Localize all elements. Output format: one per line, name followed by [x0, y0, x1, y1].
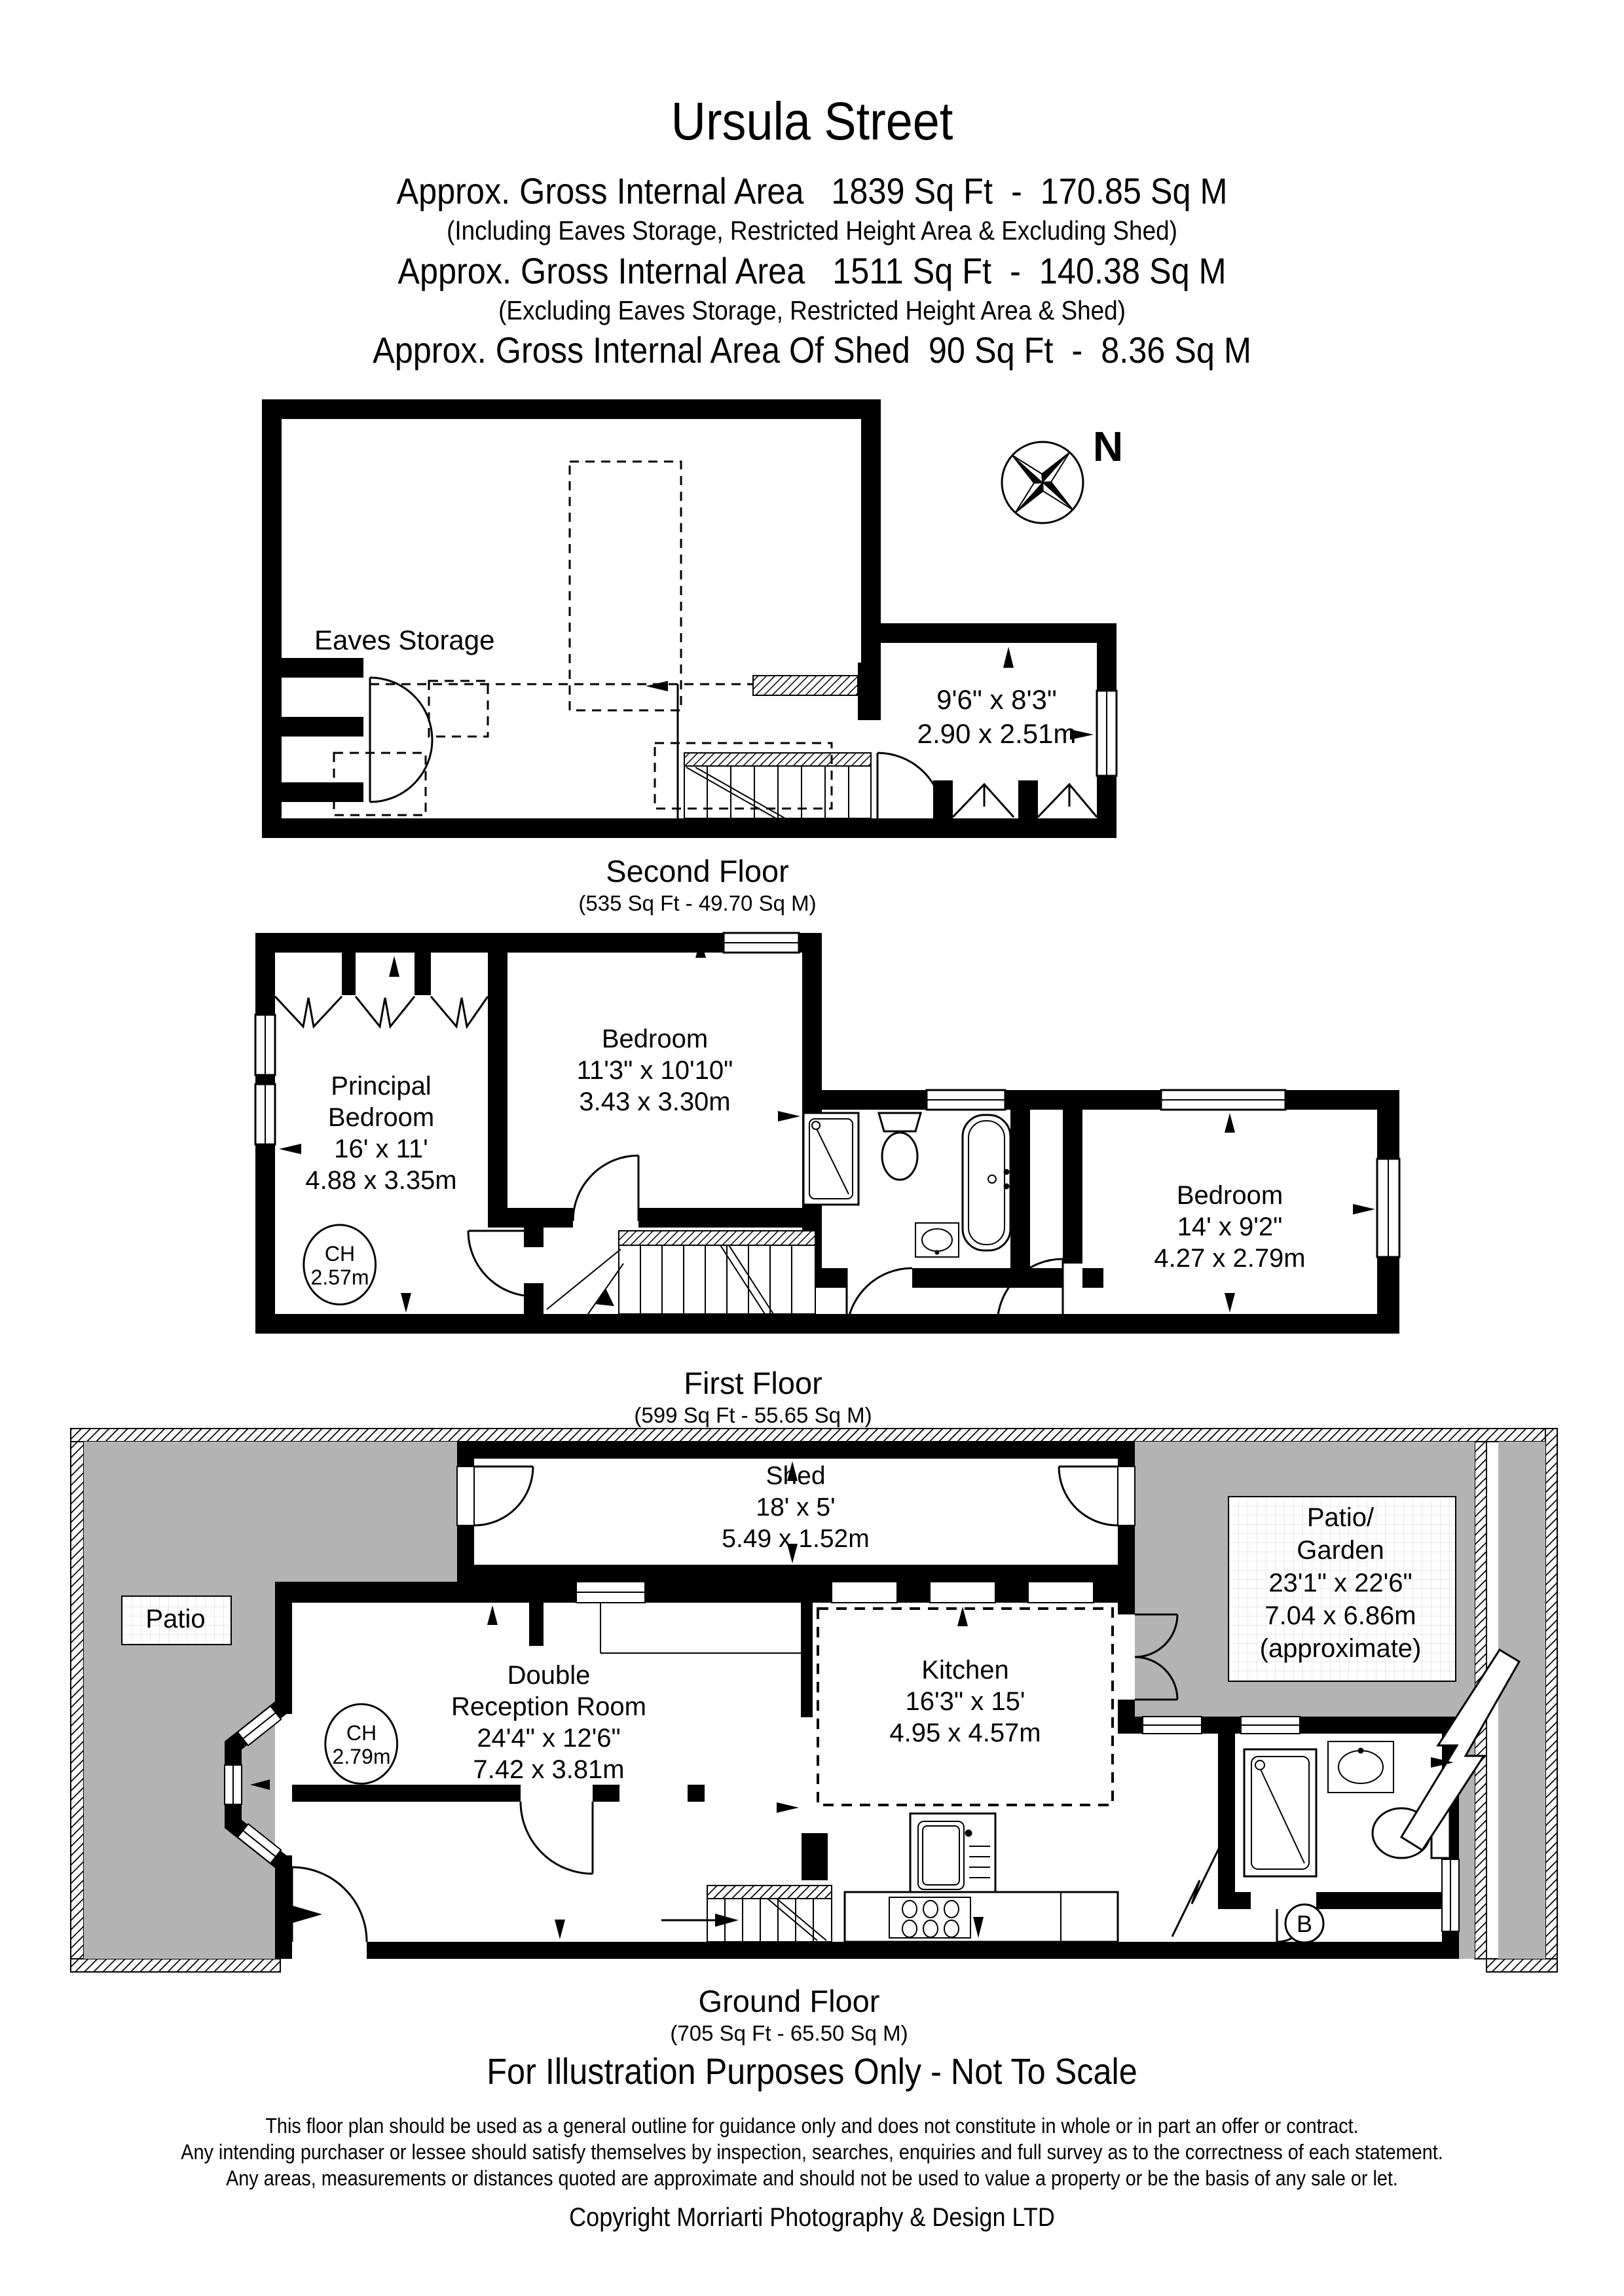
floor-name-second: Second Floor — [606, 855, 789, 888]
sink-icon — [910, 1813, 995, 1897]
room-label-principal-bedroom-line2: Bedroom — [328, 1104, 434, 1132]
room-label-kitchen: Kitchen — [921, 1656, 1008, 1685]
wardrobe-bifold-icon — [275, 996, 488, 1027]
room-dim-metric: 4.88 x 3.35m — [305, 1167, 456, 1195]
room-dim-imperial: 24'4" x 12'6" — [477, 1724, 620, 1753]
floor-area-ground: (705 Sq Ft - 65.50 Sq M) — [670, 2022, 908, 2045]
room-dim-metric: 4.95 x 4.57m — [889, 1719, 1041, 1747]
room-label-reception-line2: Reception Room — [451, 1693, 646, 1721]
doorway-zigzag-icon — [1172, 1848, 1219, 1937]
scale-disclaimer: For Illustration Purposes Only - Not To … — [487, 2052, 1137, 2091]
gross-area-line-3: Approx. Gross Internal Area Of Shed 90 S… — [373, 331, 1251, 370]
boiler-label: B — [1297, 1912, 1312, 1937]
room-label-shed: Shed — [766, 1463, 825, 1490]
disclaimer-line-1: This floor plan should be used as a gene… — [265, 2115, 1358, 2138]
area-label-patio: Patio — [145, 1605, 205, 1633]
door-arc-icon — [370, 678, 432, 802]
room-dim-metric: 4.27 x 2.79m — [1154, 1245, 1305, 1273]
ceiling-height-label: CH — [325, 1243, 355, 1266]
page-title: Ursula Street — [671, 93, 953, 151]
ceiling-height-label: CH — [346, 1722, 377, 1745]
bath-icon — [963, 1115, 1010, 1250]
room-dim-metric: 2.90 x 2.51m — [917, 719, 1077, 748]
room-dim-metric: 3.43 x 3.30m — [579, 1088, 730, 1116]
stairs-icon — [655, 743, 871, 818]
room-dim-imperial: 16'3" x 15' — [906, 1688, 1025, 1716]
shower-icon — [1244, 1749, 1316, 1876]
disclaimer-line-3: Any areas, measurements or distances quo… — [226, 2167, 1398, 2190]
room-dim-imperial: 18' x 5' — [756, 1494, 835, 1522]
area-label-garden-line1: Patio/ — [1307, 1504, 1374, 1532]
basin-icon — [915, 1223, 959, 1257]
restricted-height-wall — [753, 676, 858, 695]
shower-icon — [803, 1113, 858, 1205]
stairs-icon — [661, 1886, 832, 1942]
area-label-garden-note: (approximate) — [1260, 1635, 1422, 1663]
copyright-notice: Copyright Morriarti Photography & Design… — [569, 2204, 1055, 2232]
toilet-icon — [879, 1113, 921, 1180]
floor-plan-page: Ursula Street Approx. Gross Internal Are… — [0, 0, 1624, 2296]
entrance-arrow-icon — [275, 1901, 322, 1928]
room-label-eaves-storage: Eaves Storage — [314, 625, 495, 655]
gross-area-line-2: Approx. Gross Internal Area 1511 Sq Ft -… — [397, 251, 1226, 291]
area-dim-metric: 7.04 x 6.86m — [1264, 1602, 1416, 1630]
room-label-bedroom-mid: Bedroom — [602, 1025, 708, 1053]
area-label-garden-line2: Garden — [1297, 1537, 1384, 1565]
gross-area-line-1: Approx. Gross Internal Area 1839 Sq Ft -… — [396, 172, 1227, 211]
room-label-reception-line1: Double — [507, 1662, 591, 1690]
room-dim-imperial: 16' x 11' — [334, 1135, 428, 1163]
room-dim-metric: 7.42 x 3.81m — [473, 1756, 624, 1784]
floor-area-second: (535 Sq Ft - 49.70 Sq M) — [578, 892, 816, 915]
floor-name-first: First Floor — [684, 1367, 822, 1400]
room-dim-imperial: 9'6" x 8'3" — [936, 685, 1057, 714]
room-label-bedroom-right: Bedroom — [1177, 1182, 1283, 1210]
room-dim-metric: 5.49 x 1.52m — [722, 1525, 869, 1553]
window-icon — [1097, 691, 1116, 776]
ceiling-height-value: 2.79m — [333, 1745, 391, 1768]
basin-icon — [1328, 1741, 1393, 1793]
gross-area-note-2: (Excluding Eaves Storage, Restricted Hei… — [498, 296, 1126, 325]
ceiling-height-value: 2.57m — [311, 1266, 369, 1289]
room-dim-imperial: 14' x 9'2" — [1177, 1213, 1283, 1241]
area-dim-imperial: 23'1" x 22'6" — [1268, 1569, 1412, 1597]
room-dim-imperial: 11'3" x 10'10" — [577, 1057, 733, 1085]
floor-name-ground: Ground Floor — [699, 1985, 880, 2018]
gross-area-note-1: (Including Eaves Storage, Restricted Hei… — [447, 216, 1177, 245]
disclaimer-line-2: Any intending purchaser or lessee should… — [181, 2141, 1443, 2164]
compass-north-label: N — [1093, 424, 1123, 469]
stairs-icon — [547, 1231, 815, 1314]
room-label-principal-bedroom-line1: Principal — [331, 1072, 431, 1101]
